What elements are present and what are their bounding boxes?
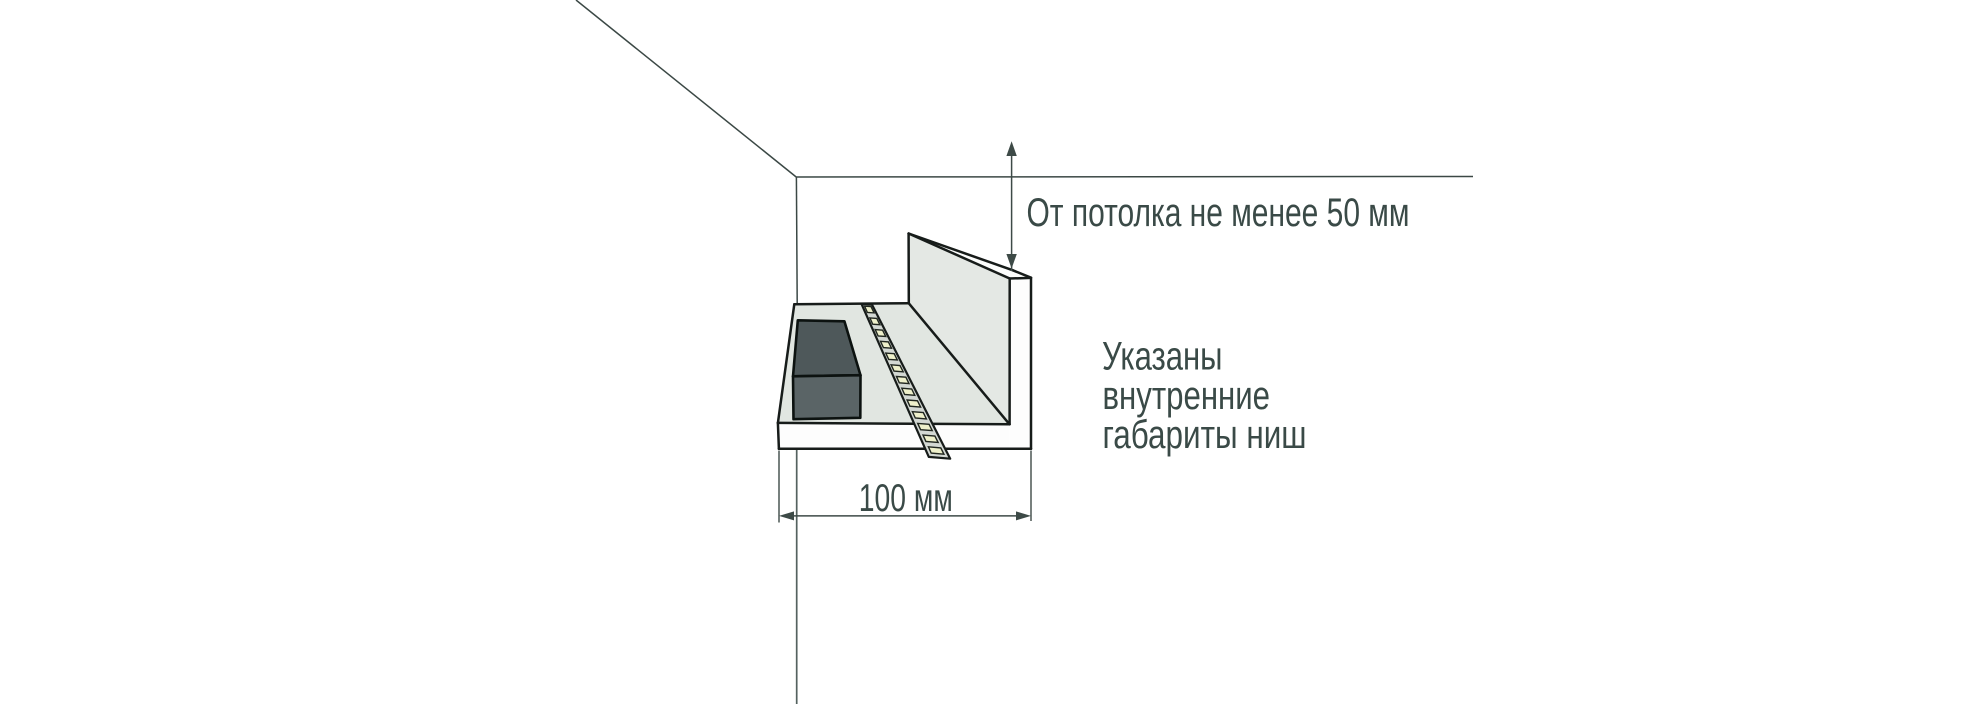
- svg-text:внутренние: внутренние: [1103, 374, 1271, 418]
- svg-text:Указаны: Указаны: [1102, 334, 1223, 378]
- svg-text:габариты ниш: габариты ниш: [1103, 413, 1307, 457]
- svg-text:От потолка не менее 50 мм: От потолка не менее 50 мм: [1027, 191, 1410, 235]
- svg-text:100 мм: 100 мм: [859, 477, 953, 520]
